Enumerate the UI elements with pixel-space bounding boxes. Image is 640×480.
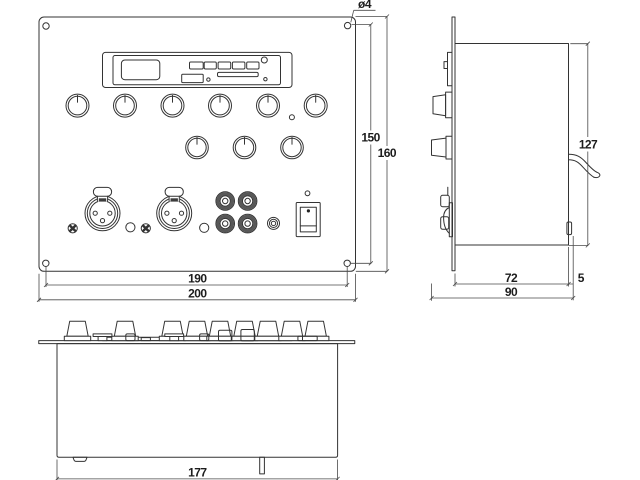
svg-text:5: 5 bbox=[578, 271, 585, 285]
svg-text:72: 72 bbox=[505, 271, 518, 285]
svg-text:150: 150 bbox=[361, 130, 380, 144]
svg-text:200: 200 bbox=[188, 286, 207, 300]
svg-text:160: 160 bbox=[378, 146, 397, 160]
svg-text:90: 90 bbox=[505, 285, 518, 299]
svg-text:177: 177 bbox=[188, 466, 207, 480]
svg-text:127: 127 bbox=[579, 137, 598, 151]
svg-text:190: 190 bbox=[188, 272, 207, 286]
svg-text:ø4: ø4 bbox=[358, 0, 372, 11]
